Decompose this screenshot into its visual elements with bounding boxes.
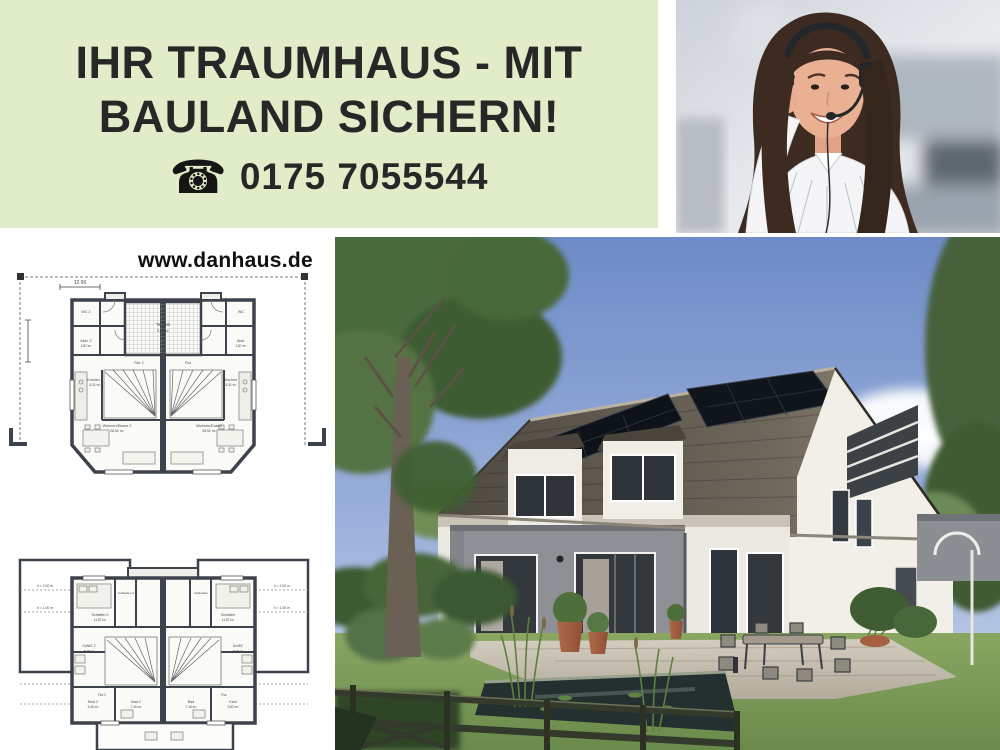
- boundary-marker-right: [301, 273, 308, 280]
- label-kind: Kind: [229, 700, 236, 704]
- label-schlafen2: Schlafen 2: [92, 613, 109, 617]
- label-abst2: Abst. 2: [80, 339, 91, 343]
- label-abst: Abst.: [237, 339, 245, 343]
- left-eye: [811, 84, 819, 89]
- height-note-r1: h = 2.00 m: [274, 584, 290, 588]
- phone-row: ☎ 0175 7055544: [170, 156, 489, 198]
- dormer-right: [597, 425, 687, 519]
- area-duwc: 5.38 m²: [233, 649, 243, 653]
- dormer-left: [501, 433, 585, 527]
- area-bad2: 7.16 m²: [131, 705, 142, 709]
- label-ankleiden2: Ankleiden 2: [118, 591, 134, 595]
- floorplan-ground: 12.96: [5, 260, 330, 495]
- label-flur: Flur: [185, 361, 192, 365]
- height-note-r2: h = 1.00 m: [274, 606, 290, 610]
- party-wall-og: [160, 578, 166, 723]
- ad-flyer: IHR TRAUMHAUS - MIT BAULAND SICHERN! ☎ 0…: [0, 0, 1000, 750]
- area-abst: 2.87 m²: [236, 344, 247, 348]
- floorplans-column: www.danhaus.de 12.96: [0, 237, 335, 750]
- label-flur2-og: Flur 2: [98, 693, 106, 697]
- area-wohnen: 28.52 m²: [202, 429, 216, 433]
- height-note-l1: h = 2.00 m: [37, 584, 53, 588]
- call-agent-photo: [676, 0, 1000, 233]
- label-wohnen2: Wohnen/Essen 2: [103, 424, 132, 428]
- label-bad2: Bad 2: [131, 700, 140, 704]
- label-duwc2: Du/WC 2: [83, 644, 96, 648]
- gable-window-1: [832, 490, 849, 542]
- house-render-photo: [335, 237, 1000, 750]
- area-technik: 9.69 m²: [157, 329, 169, 333]
- area-abst2: 2.87 m²: [81, 344, 92, 348]
- area-kind: 9.62 m²: [228, 705, 239, 709]
- area-wohnen2: 28.52 m²: [110, 429, 124, 433]
- label-duwc: Du/WC: [233, 644, 244, 648]
- area-bad: 7.16 m²: [186, 705, 197, 709]
- entry-left: [105, 293, 125, 300]
- area-kochen2: 8.31 m²: [90, 383, 101, 387]
- area-kind2: 9.49 m²: [88, 705, 99, 709]
- label-wohnen: Wohnen/Essen: [196, 424, 222, 428]
- label-kind2: Kind 2: [88, 700, 98, 704]
- monitor-edge: [676, 118, 724, 233]
- area-schlafen: 11.87 m²: [222, 618, 234, 622]
- agent-illustration: [676, 0, 1000, 233]
- boundary-L-left: [11, 428, 27, 444]
- label-schlafen: Schlafen: [221, 613, 235, 617]
- house-illustration: [335, 237, 1000, 750]
- label-bad: Bad: [188, 700, 194, 704]
- headline-panel: IHR TRAUMHAUS - MIT BAULAND SICHERN! ☎ 0…: [0, 0, 658, 228]
- headline-line1: IHR TRAUMHAUS - MIT: [76, 36, 583, 90]
- label-wc: WC: [238, 310, 244, 314]
- area-schlafen2: 11.87 m²: [94, 618, 106, 622]
- label-flur2: Flur 2: [134, 361, 143, 365]
- bottom-dormer: [97, 723, 233, 750]
- label-kochen: Kochen: [225, 378, 237, 382]
- label-flur-og: Flur: [221, 693, 227, 697]
- label-kochen2: Kochen 2: [87, 378, 102, 382]
- boundary-marker-left: [17, 273, 24, 280]
- gable-window-2: [856, 499, 872, 547]
- boundary-L-right: [308, 428, 324, 444]
- overhang-foliage: [393, 441, 477, 513]
- label-ankleiden: Ankleiden: [194, 591, 208, 595]
- phone-number: 0175 7055544: [240, 156, 489, 198]
- bollard-light: [733, 657, 738, 673]
- wall-lamp: [557, 556, 564, 563]
- floorplan-upper: h = 2.00 m h = 1.00 m h = 2.00 m h = 1.0…: [5, 552, 330, 750]
- area-kochen: 8.31 m²: [226, 383, 237, 387]
- carport: [917, 514, 1000, 581]
- tall-window-1: [710, 549, 738, 639]
- label-technik: Technik: [156, 322, 171, 327]
- entry-right: [201, 293, 221, 300]
- mic-tip: [826, 112, 836, 120]
- area-duwc2: 5.38 m²: [84, 649, 94, 653]
- dim-overall-width: 12.96: [74, 280, 87, 286]
- telephone-icon: ☎: [170, 157, 227, 197]
- right-eye: [841, 84, 849, 89]
- headline-line2: BAULAND SICHERN!: [99, 90, 559, 144]
- label-wc2: WC 2: [82, 310, 91, 314]
- height-note-l2: h = 1.00 m: [37, 606, 53, 610]
